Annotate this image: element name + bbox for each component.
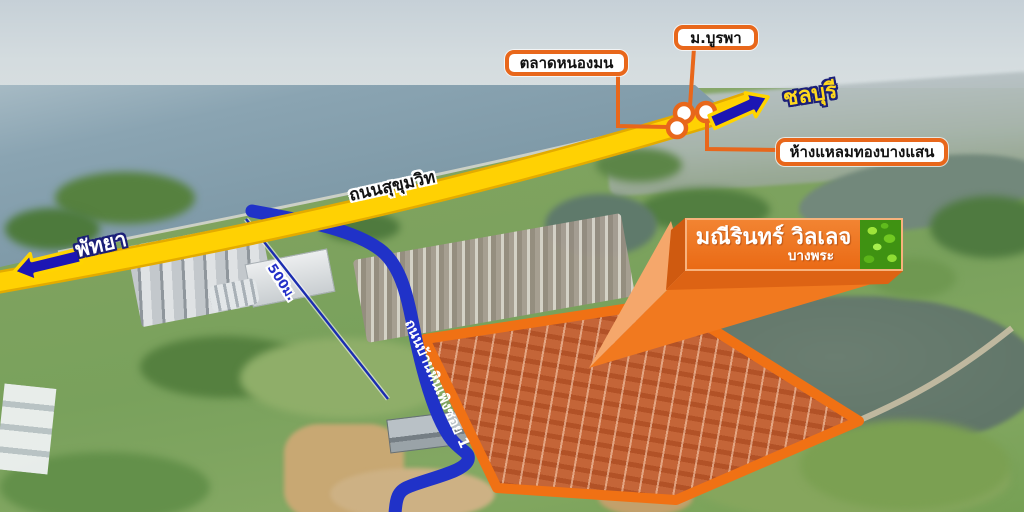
connector-burapha (690, 48, 694, 106)
label-burapha-university: ม.บูรพา (674, 25, 758, 50)
project-text-area: มณีรินทร์ วิลเลจ บางพระ (687, 220, 860, 269)
project-name: มณีรินทร์ วิลเลจ (696, 226, 851, 249)
label-nongmon-market: ตลาดหนองมน (505, 50, 628, 76)
leaf-photo (860, 220, 901, 269)
label-laemthong-text: ห้างแหลมทองบางแสน (790, 140, 935, 164)
project-location: บางพระ (788, 249, 834, 263)
label-nongmon-text: ตลาดหนองมน (520, 51, 614, 75)
project-callout-box: มณีรินทร์ วิลเลจ บางพระ (685, 218, 903, 271)
map-marker-dot (668, 119, 686, 137)
dirt-path (860, 328, 1012, 420)
label-laemthong-mall: ห้างแหลมทองบางแสน (776, 138, 948, 166)
label-burapha-text: ม.บูรพา (690, 26, 741, 50)
location-map: ตลาดหนองมน ม.บูรพา ห้างแหลมทองบางแสน ชลบ… (0, 0, 1024, 512)
